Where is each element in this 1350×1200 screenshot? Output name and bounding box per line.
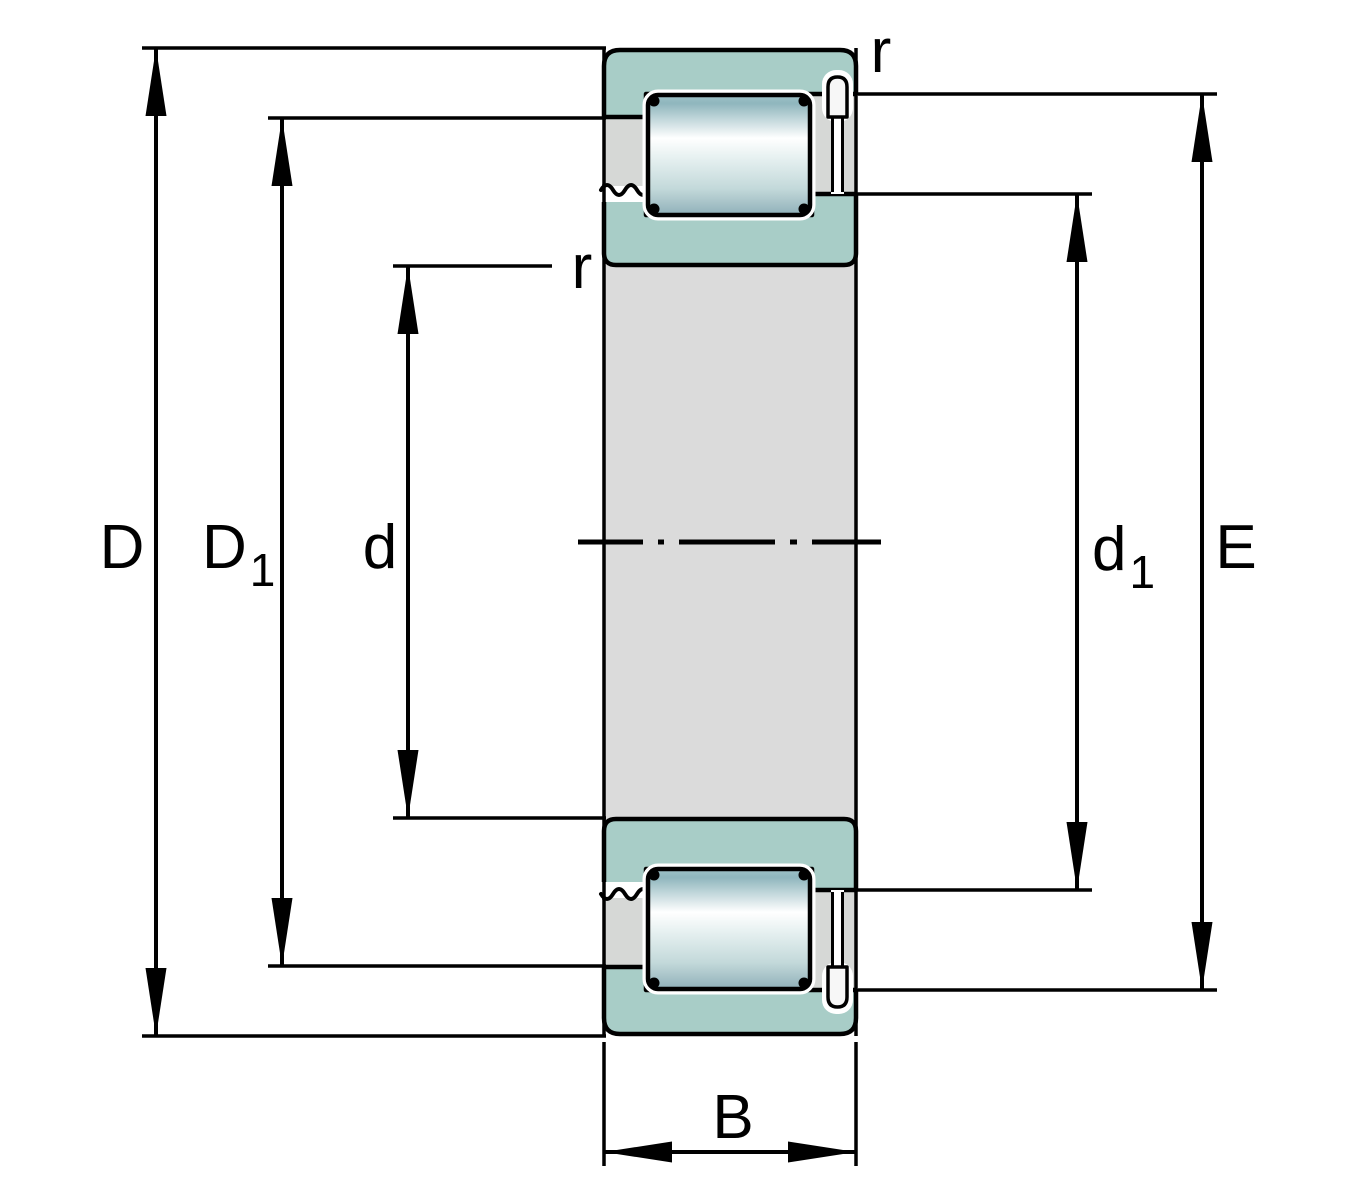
dimension-d1-label-subscript: 1 xyxy=(1129,546,1155,598)
roller-corner-dot xyxy=(649,870,660,881)
dimension-B: B xyxy=(604,1042,856,1166)
cage-section-top-left xyxy=(604,119,646,186)
bearing-drawing: D D1 d d1 E xyxy=(0,0,1350,1200)
fillet-radius-label-outer: r xyxy=(871,17,892,86)
bearing-cross-section-svg: D D1 d d1 E xyxy=(0,0,1350,1200)
roller-corner-dot xyxy=(799,870,810,881)
roller-corner-dot xyxy=(799,96,810,107)
fillet-radius-label-inner: r xyxy=(572,233,593,302)
dimension-B-arrow-right xyxy=(788,1142,856,1163)
dimension-B-arrow-left xyxy=(604,1142,672,1163)
dimension-D1-label: D1 xyxy=(202,513,275,596)
dimension-d1-arrow-up xyxy=(1067,194,1088,262)
retaining-ring-bottom-cap xyxy=(828,967,847,1007)
dimension-D-arrow-down xyxy=(146,968,167,1036)
dimension-D1-arrow-up xyxy=(272,118,293,186)
dimension-d1-label-main: d xyxy=(1092,515,1126,584)
roller-top xyxy=(648,95,810,215)
dimension-d: d xyxy=(363,266,606,818)
dimension-B-label: B xyxy=(712,1083,753,1152)
roller-corner-dot xyxy=(799,204,810,215)
dimension-d1-arrow-down xyxy=(1067,822,1088,890)
dimension-d-label: d xyxy=(363,513,397,582)
dimension-E-label: E xyxy=(1215,513,1256,582)
dimension-D-label: D xyxy=(100,513,145,582)
dimension-D1-arrow-down xyxy=(272,898,293,966)
roller-top-body xyxy=(648,95,810,215)
dimension-d-arrow-down xyxy=(398,750,419,818)
dimension-E-arrow-down xyxy=(1192,922,1213,990)
cage-section-bottom-left xyxy=(604,898,646,965)
roller-corner-dot xyxy=(649,978,660,989)
roller-corner-dot xyxy=(649,96,660,107)
roller-bottom-body xyxy=(648,869,810,989)
dimension-d-arrow-up xyxy=(398,266,419,334)
roller-bottom xyxy=(648,869,810,989)
roller-corner-dot xyxy=(649,204,660,215)
retaining-ring-top-cap xyxy=(828,77,847,117)
roller-corner-dot xyxy=(799,978,810,989)
dimension-D-arrow-up xyxy=(146,48,167,116)
dimension-D: D xyxy=(100,48,606,1036)
dimension-D1-label-subscript: 1 xyxy=(250,544,276,596)
dimension-E: E xyxy=(858,94,1257,990)
dimension-D1: D1 xyxy=(202,118,606,966)
dimension-d1-label: d1 xyxy=(1092,515,1155,598)
dimension-E-arrow-up xyxy=(1192,94,1213,162)
dimension-d1: d1 xyxy=(856,194,1155,890)
bearing-section xyxy=(578,48,884,1036)
dimension-D1-label-main: D xyxy=(202,513,247,582)
